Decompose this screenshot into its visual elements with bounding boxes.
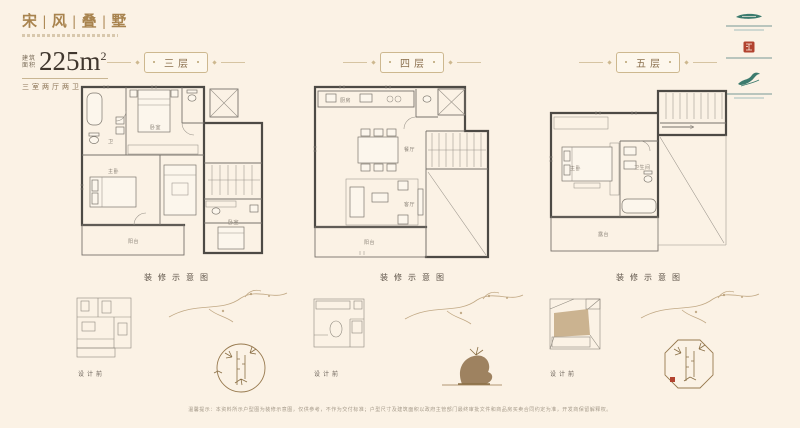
floor-tab-box: 五层 xyxy=(616,52,680,73)
room-label: 卫生间 xyxy=(634,164,651,171)
logo-caption-line xyxy=(726,25,772,27)
room-label: 阳台 xyxy=(128,238,139,245)
tab-ornament-dot xyxy=(371,60,375,64)
tab-ornament-dot xyxy=(669,61,671,63)
tab-ornament-line xyxy=(221,62,245,63)
panel-floor-4: 四层 xyxy=(298,52,526,401)
bonsai-rock-stamp xyxy=(436,341,508,393)
octagon-bamboo-stamp xyxy=(656,333,720,397)
logo-caption-line xyxy=(734,29,764,31)
tab-ornament-dot xyxy=(212,60,216,64)
room-label: 主卧 xyxy=(108,168,119,175)
floor-tab-4: 四层 xyxy=(343,52,481,72)
stairs xyxy=(660,93,726,129)
floor-tab-label: 五层 xyxy=(632,55,664,70)
plan-caption: 装修示意图 xyxy=(374,272,450,283)
dining-table xyxy=(358,129,398,171)
floorplan-panels: 三层 xyxy=(62,52,762,401)
room-label: 露台 xyxy=(598,231,609,238)
tab-ornament-dot xyxy=(684,60,688,64)
floor-tab-3: 三层 xyxy=(107,52,245,72)
floorplan-5f: 主卧 卫生间 露台 xyxy=(536,77,761,269)
mini-plan-label: 设计前 xyxy=(550,369,577,378)
plum-branch-art xyxy=(401,285,526,333)
panel-floor-3: 三层 xyxy=(62,52,290,401)
mini-plan-before xyxy=(308,295,378,361)
roof-void xyxy=(658,135,726,245)
brand-subtitle-line xyxy=(22,34,118,37)
floor-tab-label: 四层 xyxy=(396,55,428,70)
room-label: 餐厅 xyxy=(404,146,415,153)
plan-caption: 装修示意图 xyxy=(138,272,214,283)
area-label-line2: 面积 xyxy=(22,63,36,70)
bed xyxy=(164,165,196,215)
room-label: 客厅 xyxy=(404,201,415,208)
floor-tab-5: 五层 xyxy=(579,52,717,72)
room-label: 主卧 xyxy=(570,165,581,172)
tab-ornament-line xyxy=(693,62,717,63)
floorplan-4f-svg: 厨房 餐厅 客厅 阳台 xyxy=(300,77,525,269)
tab-ornament-line xyxy=(457,62,481,63)
brochure-page: 宋 | 风 | 叠 | 墅 建筑 面积 225m2 三室两厅两卫 xyxy=(0,0,800,428)
bamboo-seal-stamp xyxy=(208,337,270,397)
toilet xyxy=(187,90,197,101)
stairs xyxy=(208,165,260,195)
tab-ornament-dot xyxy=(153,61,155,63)
page-title: 宋 | 风 | 叠 | 墅 xyxy=(22,10,172,31)
ribbon-mark-icon xyxy=(734,12,764,21)
room-label: 卫 xyxy=(108,139,114,145)
tab-ornament-dot xyxy=(433,61,435,63)
panel-footer-zone: 设计前 xyxy=(62,289,290,401)
mini-plan-before xyxy=(544,295,614,361)
room-label: 阳台 xyxy=(364,239,375,246)
toilet xyxy=(212,208,220,214)
tab-ornament-line xyxy=(343,62,367,63)
panel-footer-zone: 设计前 xyxy=(534,289,762,401)
area-label: 建筑 面积 xyxy=(22,56,36,70)
bathtub xyxy=(87,93,102,125)
tab-ornament-line xyxy=(107,62,131,63)
floorplan-5f-svg: 主卧 卫生间 露台 xyxy=(536,77,761,269)
tab-ornament-dot xyxy=(389,61,391,63)
tab-ornament-dot xyxy=(625,61,627,63)
logo-item-1 xyxy=(726,12,772,31)
room-label: 厨房 xyxy=(340,97,351,104)
bed xyxy=(218,227,244,249)
floorplan-3f-svg: 卧室 主卧 卧室 阳台 卫 xyxy=(64,77,289,269)
floor-tab-label: 三层 xyxy=(160,55,192,70)
floorplan-3f: 卧室 主卧 卧室 阳台 卫 xyxy=(64,77,289,269)
tab-ornament-dot xyxy=(607,60,611,64)
kitchen-counter xyxy=(318,91,414,107)
floor-tab-box: 三层 xyxy=(144,52,208,73)
mini-plan-label: 设计前 xyxy=(314,369,341,378)
mini-plan-before xyxy=(72,295,142,361)
room-label: 卧室 xyxy=(150,124,161,131)
master-bed xyxy=(90,177,136,207)
tab-ornament-dot xyxy=(135,60,139,64)
room-label: 卧室 xyxy=(228,219,239,226)
mini-plan-label: 设计前 xyxy=(78,369,105,378)
bathtub xyxy=(622,199,656,213)
panel-floor-5: 五层 xyxy=(534,52,762,401)
toilet xyxy=(89,133,99,144)
panel-footer-zone: 设计前 xyxy=(298,289,526,401)
toilet xyxy=(423,96,431,102)
red-seal-dot xyxy=(670,377,675,382)
floor-tab-box: 四层 xyxy=(380,52,444,73)
stairs xyxy=(428,133,486,167)
tab-ornament-dot xyxy=(197,61,199,63)
footer-disclaimer: 温馨提示：本资料所示户型图为装修示意图，仅供参考，不作为交付标准；户型尺寸及建筑… xyxy=(0,406,800,413)
floorplan-4f: 厨房 餐厅 客厅 阳台 xyxy=(300,77,525,269)
tab-ornament-dot xyxy=(448,60,452,64)
plum-branch-art xyxy=(637,285,762,333)
plan-caption: 装修示意图 xyxy=(610,272,686,283)
plum-branch-art xyxy=(165,285,290,333)
area-label-line1: 建筑 xyxy=(22,56,36,63)
toilet xyxy=(644,171,652,182)
tab-ornament-line xyxy=(579,62,603,63)
double-height-void xyxy=(428,172,486,255)
